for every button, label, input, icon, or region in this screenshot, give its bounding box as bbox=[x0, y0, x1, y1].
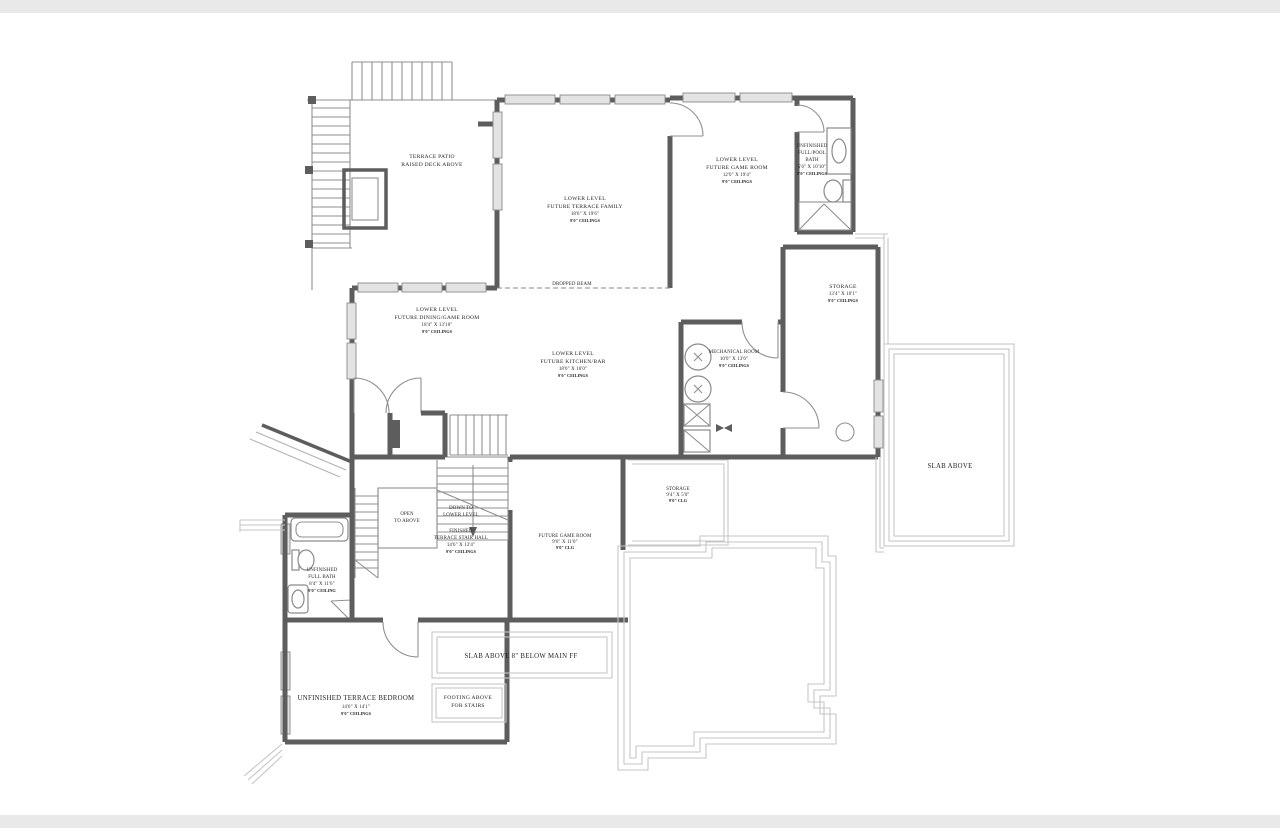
deck-post bbox=[305, 240, 313, 248]
door-swing bbox=[797, 105, 824, 132]
lower-block-walls bbox=[250, 413, 628, 742]
svg-text:FULL BATH: FULL BATH bbox=[308, 575, 336, 580]
svg-text:LOWER LEVEL: LOWER LEVEL bbox=[716, 157, 758, 163]
label-pool-bath: UNFINISHED FULL/POOL BATH 5'6" X 10'10" … bbox=[797, 144, 828, 176]
svg-text:MECHANICAL ROOM: MECHANICAL ROOM bbox=[709, 350, 760, 355]
shower-fixture bbox=[799, 202, 851, 230]
svg-text:9'0" CEILINGS: 9'0" CEILINGS bbox=[797, 171, 828, 176]
svg-text:9'0" CEILINGS: 9'0" CEILINGS bbox=[570, 218, 601, 223]
window bbox=[358, 283, 398, 292]
deck-post bbox=[305, 166, 313, 174]
svg-text:9'0" CLG: 9'0" CLG bbox=[556, 545, 575, 550]
svg-text:FULL/POOL: FULL/POOL bbox=[798, 151, 826, 156]
label-slab-note: SLAB ABOVE 8" BELOW MAIN FF bbox=[465, 653, 578, 660]
window bbox=[402, 283, 442, 292]
svg-text:9'0" CEILING: 9'0" CEILING bbox=[308, 588, 336, 593]
label-terrace-patio: TERRACE PATIO RAISED DECK ABOVE bbox=[401, 154, 463, 168]
svg-text:LOWER LEVEL: LOWER LEVEL bbox=[564, 196, 606, 202]
toilet-fixture bbox=[824, 180, 842, 202]
svg-text:UNFINISHED: UNFINISHED bbox=[307, 568, 338, 573]
svg-text:9'0" CEILINGS: 9'0" CEILINGS bbox=[828, 298, 859, 303]
label-open-to-above: OPEN TO ABOVE bbox=[394, 512, 419, 524]
label-kitchen-bar: LOWER LEVEL FUTURE KITCHEN/BAR 18'0" X 1… bbox=[540, 351, 605, 378]
toilet-tank bbox=[843, 180, 851, 202]
floor-plan-svg: TERRACE PATIO RAISED DECK ABOVE LOWER LE… bbox=[0, 0, 1280, 828]
svg-text:STORAGE: STORAGE bbox=[829, 284, 857, 290]
label-game-room: LOWER LEVEL FUTURE GAME ROOM 12'0" X 19'… bbox=[706, 157, 768, 184]
svg-text:12'0" X 19'4": 12'0" X 19'4" bbox=[723, 173, 751, 178]
deck-and-exterior-stairs bbox=[305, 62, 497, 290]
label-footing-note: FOOTING ABOVE FOR STAIRS bbox=[444, 695, 492, 709]
label-mechanical: MECHANICAL ROOM 10'0" X 13'6" 9'0" CEILI… bbox=[709, 350, 760, 368]
svg-text:FUTURE TERRACE FAMILY: FUTURE TERRACE FAMILY bbox=[547, 204, 623, 210]
svg-text:UNFINISHED: UNFINISHED bbox=[797, 144, 828, 149]
windows bbox=[281, 93, 883, 734]
label-storage-small: STORAGE 9'4" X 5'0" 9'0" CLG bbox=[666, 487, 690, 503]
svg-text:LOWER LEVEL: LOWER LEVEL bbox=[552, 351, 594, 357]
svg-text:9'0" CEILINGS: 9'0" CEILINGS bbox=[446, 549, 477, 554]
svg-text:TERRACE PATIO: TERRACE PATIO bbox=[409, 154, 454, 160]
door-swing bbox=[670, 103, 703, 136]
svg-text:BATH: BATH bbox=[805, 158, 819, 163]
toilet-fixture bbox=[298, 550, 314, 570]
window bbox=[874, 380, 883, 412]
label-terrace-bedroom: UNFINISHED TERRACE BEDROOM 14'6" X 14'1"… bbox=[298, 695, 415, 716]
label-dining-game: LOWER LEVEL FUTURE DINING/GAME ROOM 18'4… bbox=[395, 307, 480, 334]
window bbox=[347, 303, 356, 339]
svg-text:FUTURE GAME ROOM: FUTURE GAME ROOM bbox=[539, 534, 592, 539]
valve-symbol bbox=[716, 424, 724, 432]
top-band bbox=[0, 0, 1280, 13]
svg-text:10'0" X 13'6": 10'0" X 13'6" bbox=[720, 357, 748, 362]
svg-text:FINISHED: FINISHED bbox=[449, 529, 473, 534]
retaining-wall bbox=[262, 425, 352, 462]
label-storage: STORAGE 13'4" X 10'1" 9'0" CEILINGS bbox=[828, 284, 859, 303]
svg-text:DOWN TO: DOWN TO bbox=[449, 506, 473, 511]
svg-text:FUTURE DINING/GAME ROOM: FUTURE DINING/GAME ROOM bbox=[395, 315, 480, 321]
sink-fixture bbox=[832, 139, 846, 163]
svg-text:9'0" CEILINGS: 9'0" CEILINGS bbox=[341, 711, 372, 716]
svg-text:14'6" X 14'1": 14'6" X 14'1" bbox=[342, 705, 370, 710]
svg-text:9'0" CLG: 9'0" CLG bbox=[669, 498, 688, 503]
bottom-band bbox=[0, 815, 1280, 828]
deck-post bbox=[308, 96, 316, 104]
svg-text:STORAGE: STORAGE bbox=[666, 487, 690, 492]
doors bbox=[331, 103, 824, 657]
svg-text:13'4" X 10'1": 13'4" X 10'1" bbox=[829, 292, 857, 297]
label-slab-above: SLAB ABOVE bbox=[927, 463, 972, 470]
floor-plan-page: TERRACE PATIO RAISED DECK ABOVE LOWER LE… bbox=[0, 0, 1280, 828]
sink-fixture bbox=[292, 590, 304, 608]
window bbox=[740, 93, 792, 102]
svg-text:9'0" CEILINGS: 9'0" CEILINGS bbox=[719, 363, 750, 368]
open-to-above-well bbox=[378, 488, 437, 548]
svg-text:FOOTING ABOVE: FOOTING ABOVE bbox=[444, 695, 492, 701]
sump-pit bbox=[836, 423, 854, 441]
double-door-swing bbox=[354, 378, 421, 413]
svg-text:TO ABOVE: TO ABOVE bbox=[394, 519, 419, 524]
label-game-room-small: FUTURE GAME ROOM 9'6" X 11'0" 9'0" CLG bbox=[539, 534, 592, 550]
window bbox=[560, 95, 610, 104]
window bbox=[683, 93, 735, 102]
window bbox=[615, 95, 665, 104]
svg-text:FUTURE GAME ROOM: FUTURE GAME ROOM bbox=[706, 165, 768, 171]
svg-text:SLAB ABOVE: SLAB ABOVE bbox=[927, 463, 972, 470]
svg-text:9'0" CEILINGS: 9'0" CEILINGS bbox=[422, 329, 453, 334]
svg-text:FOR STAIRS: FOR STAIRS bbox=[451, 703, 485, 709]
label-stair-hall: FINISHED TERRACE STAIR HALL 14'6" X 13'4… bbox=[434, 529, 488, 554]
label-dropped-beam: DROPPED BEAM bbox=[552, 282, 592, 287]
svg-text:9'0" CEILINGS: 9'0" CEILINGS bbox=[722, 179, 753, 184]
svg-text:SLAB ABOVE 8" BELOW MAIN FF: SLAB ABOVE 8" BELOW MAIN FF bbox=[465, 653, 578, 660]
svg-text:18'4" X 13'10": 18'4" X 13'10" bbox=[422, 323, 453, 328]
svg-text:18'6" X 19'6": 18'6" X 19'6" bbox=[571, 212, 599, 217]
door-swing bbox=[383, 622, 418, 657]
window bbox=[446, 283, 486, 292]
svg-text:RAISED DECK ABOVE: RAISED DECK ABOVE bbox=[401, 162, 463, 168]
valve-symbol bbox=[724, 424, 732, 432]
window bbox=[493, 164, 502, 210]
svg-text:14'6" X 13'4": 14'6" X 13'4" bbox=[447, 543, 475, 548]
svg-text:LOWER LEVEL: LOWER LEVEL bbox=[443, 513, 479, 518]
window bbox=[493, 112, 502, 158]
svg-text:8'4" X 11'6": 8'4" X 11'6" bbox=[309, 582, 335, 587]
svg-text:9'0" CEILINGS: 9'0" CEILINGS bbox=[558, 373, 589, 378]
door-leaf bbox=[331, 600, 352, 619]
svg-text:OPEN: OPEN bbox=[400, 512, 414, 517]
svg-text:DROPPED BEAM: DROPPED BEAM bbox=[552, 282, 592, 287]
label-terrace-family: LOWER LEVEL FUTURE TERRACE FAMILY 18'6" … bbox=[547, 196, 623, 223]
interior-stairs bbox=[355, 415, 508, 578]
window bbox=[347, 343, 356, 379]
svg-text:UNFINISHED TERRACE BEDROOM: UNFINISHED TERRACE BEDROOM bbox=[298, 695, 415, 702]
svg-text:5'6" X 10'10": 5'6" X 10'10" bbox=[798, 165, 826, 170]
label-full-bath: UNFINISHED FULL BATH 8'4" X 11'6" 9'0" C… bbox=[307, 568, 338, 593]
svg-text:TERRACE STAIR HALL: TERRACE STAIR HALL bbox=[434, 536, 488, 541]
svg-text:18'0" X 16'0": 18'0" X 16'0" bbox=[559, 367, 587, 372]
window bbox=[505, 95, 555, 104]
shaft-door bbox=[392, 420, 400, 448]
svg-text:LOWER LEVEL: LOWER LEVEL bbox=[416, 307, 458, 313]
window bbox=[874, 416, 883, 448]
door-swing bbox=[783, 392, 819, 428]
svg-text:FUTURE KITCHEN/BAR: FUTURE KITCHEN/BAR bbox=[540, 359, 605, 365]
